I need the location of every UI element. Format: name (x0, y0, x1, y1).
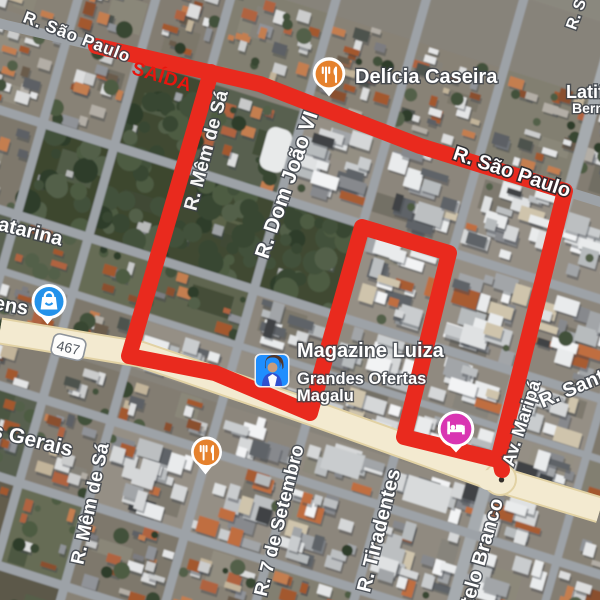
svg-text:Magalu: Magalu (297, 387, 354, 405)
svg-text:Delícia Caseira: Delícia Caseira (355, 66, 498, 88)
svg-text:Latifúndio: Latifúndio (566, 82, 600, 102)
svg-text:Grandes Ofertas: Grandes Ofertas (297, 370, 426, 388)
svg-text:Bernardes: Bernardes (572, 100, 600, 116)
svg-text:Magazine Luiza: Magazine Luiza (297, 340, 445, 362)
